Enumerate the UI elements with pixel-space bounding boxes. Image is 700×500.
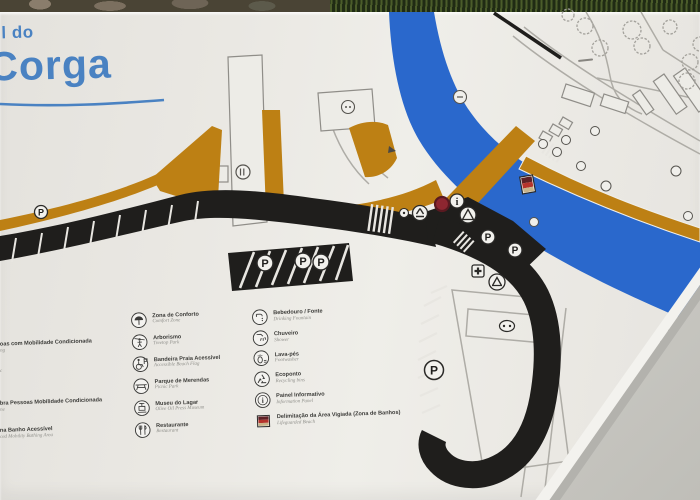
- legend-item: ArborismoTreetop Park: [131, 328, 220, 353]
- recycling-marker: [413, 206, 428, 221]
- treetop-park-icon: [131, 333, 149, 351]
- restaurant-marker: [236, 165, 250, 179]
- restaurant-icon: [134, 421, 152, 439]
- parking-marker: P: [295, 253, 311, 269]
- lifeguarded-area-icon: [255, 412, 273, 430]
- map-legend-left: Zona de ConfortoComfort Zone ArborismoTr…: [130, 306, 223, 441]
- legend-item-cutoff: na Banho Acessível ced Mobility Bathing …: [0, 426, 53, 442]
- accessible-beach-flag-icon: [132, 355, 150, 373]
- map-legend-right: Bebedouro / FonteDrinking Fountain Chuve…: [251, 302, 401, 432]
- info-marker: i: [450, 194, 464, 208]
- field-marker: [500, 321, 515, 332]
- legend-label-en: Shower: [274, 337, 298, 344]
- picnic-park-icon: [132, 377, 150, 395]
- legend-label-en: Picnic Park: [155, 384, 210, 392]
- svg-text:P: P: [317, 257, 324, 269]
- small-marker: [400, 209, 409, 218]
- parking-strip: [228, 243, 353, 291]
- olive-press-museum-icon: [133, 399, 151, 417]
- parking-marker: P: [257, 255, 273, 271]
- shower-icon: [252, 329, 270, 347]
- legend-label-en: Olive Oil Press Museum: [155, 406, 204, 414]
- legend-label-pt: Chuveiro: [274, 330, 298, 338]
- you-are-here-marker: [435, 197, 449, 211]
- svg-text:P: P: [512, 246, 519, 257]
- small-map-label: [578, 58, 593, 62]
- parking-marker: P: [425, 361, 444, 380]
- legend-item: Zona de ConfortoComfort Zone: [130, 306, 219, 331]
- svg-text:P: P: [299, 256, 306, 268]
- legend-label-en: c: [0, 369, 2, 376]
- legend-label-en: Recycling bins: [276, 378, 305, 385]
- information-panel-icon: i: [254, 391, 272, 409]
- svg-text:P: P: [38, 208, 44, 218]
- title-underline: [0, 98, 168, 108]
- parking-marker: P: [313, 254, 329, 270]
- svg-text:P: P: [430, 364, 438, 378]
- legend-item: RestauranteRestaurant: [134, 416, 223, 441]
- poi-marker: [454, 91, 467, 104]
- legend-label-en: Comfort Zone: [152, 318, 199, 326]
- legend-item-cutoff: c: [0, 369, 2, 376]
- parking-marker: P: [35, 206, 48, 219]
- lifeguard-flag-marker: [520, 175, 536, 194]
- tent-marker: [489, 274, 505, 290]
- legend-label-en: Restaurant: [156, 428, 189, 435]
- legend-label-en: Accessible Beach Flag: [154, 361, 221, 369]
- svg-text:i: i: [456, 197, 459, 208]
- footwash-icon: [253, 350, 271, 368]
- svg-text:P: P: [261, 258, 268, 270]
- drinking-fountain-icon: [251, 308, 269, 326]
- legend-label-en: Information Panel: [276, 398, 325, 406]
- title-line2: Corga: [0, 40, 112, 90]
- legend-item: Museu do LagarOlive Oil Press Museum: [133, 394, 222, 419]
- legend-item: Parque de MerendasPicnic Park: [132, 372, 221, 397]
- sign-title: l do Corga: [0, 20, 112, 90]
- legend-label-en: Treetop Park: [153, 341, 181, 348]
- legend-label-en: Footwasher: [275, 358, 299, 365]
- comfort-zone-icon: [130, 311, 148, 329]
- warning-marker: [460, 207, 476, 223]
- photo-of-map-sign: P P P P P P P i: [0, 0, 700, 500]
- poi-marker: [342, 101, 355, 114]
- parking-marker: P: [481, 230, 495, 244]
- svg-text:P: P: [485, 233, 492, 244]
- first-aid-marker: [472, 265, 484, 277]
- recycling-icon: [253, 371, 271, 389]
- parking-marker: P: [508, 243, 522, 257]
- legend-item: Bandeira Praia AcessívelAccessible Beach…: [132, 350, 221, 375]
- legend-label-en: Drinking Fountain: [273, 315, 323, 323]
